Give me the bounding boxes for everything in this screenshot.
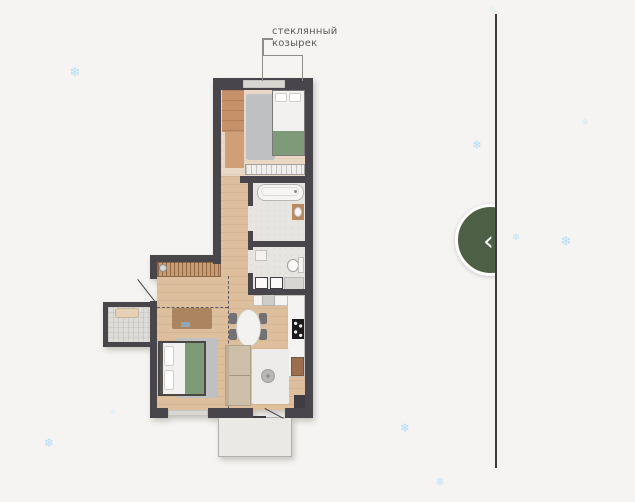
sofa: [225, 345, 251, 406]
window: [168, 410, 208, 416]
bathroom-vanity: [292, 204, 304, 220]
fridge: [262, 294, 275, 306]
wall-segment: [150, 301, 157, 410]
canopy-annotation: стеклянный козырек: [0, 0, 635, 110]
wall-segment: [248, 176, 253, 206]
balcony-mat: [115, 308, 139, 318]
carousel-prev-button[interactable]: ‹: [455, 204, 495, 276]
living-rug: [172, 308, 212, 329]
wall-segment: [248, 289, 305, 295]
balcony-wall: [103, 302, 108, 347]
wc-sink: [255, 250, 267, 261]
balcony-wall: [103, 342, 157, 347]
canopy-leader-line: [262, 38, 264, 55]
wall-segment: [150, 255, 221, 262]
dryer: [270, 277, 283, 289]
bathroom-door-gap: [248, 206, 253, 232]
terrace-door-leaf: [253, 416, 266, 418]
page: { "page": { "background_color": "#f5f4f2…: [0, 0, 635, 502]
sink: [294, 207, 302, 217]
entrance-door-swing: [137, 279, 155, 302]
carousel-divider-line: [495, 14, 497, 468]
kitchen-cabinet-dark: [294, 395, 305, 408]
pillow: [164, 370, 174, 390]
canopy-label-line1: стеклянный: [272, 26, 342, 38]
carousel-prev-clip: ‹: [452, 200, 495, 284]
terrace: [218, 417, 292, 457]
washing-machine: [255, 277, 268, 289]
radiator-dresser: [245, 164, 305, 175]
wc-door-gap: [248, 250, 253, 273]
pillow: [164, 346, 174, 366]
bed-headboard: [160, 343, 163, 394]
bathtub-faucet: [294, 190, 297, 193]
wall-segment: [305, 78, 313, 418]
cooktop: [292, 319, 304, 339]
shelf-unit: [225, 132, 244, 168]
wall-segment: [208, 408, 253, 418]
toilet-tank: [298, 257, 304, 273]
bathtub: [257, 184, 304, 201]
coffee-table: [261, 369, 275, 383]
wall-segment: [253, 241, 305, 247]
wall-segment: [285, 408, 313, 418]
canopy-label: стеклянный козырек: [272, 26, 342, 50]
bed-blanket: [185, 343, 204, 394]
dining-table: [236, 309, 261, 347]
rug-pillow: [181, 322, 190, 327]
bed-blanket: [273, 131, 304, 155]
balcony-wall: [103, 302, 157, 307]
canopy-outline: [262, 55, 303, 81]
wall-segment: [150, 408, 168, 418]
wall-segment: [150, 255, 157, 279]
canopy-label-line2: козырек: [272, 38, 342, 50]
floor-corridor: [221, 176, 248, 266]
kitchen-cabinet: [291, 357, 304, 376]
bed-double: [158, 341, 206, 396]
chevron-left-icon[interactable]: ‹: [483, 228, 494, 255]
closet-detail: [159, 264, 167, 272]
canopy-leader-line: [262, 38, 273, 40]
